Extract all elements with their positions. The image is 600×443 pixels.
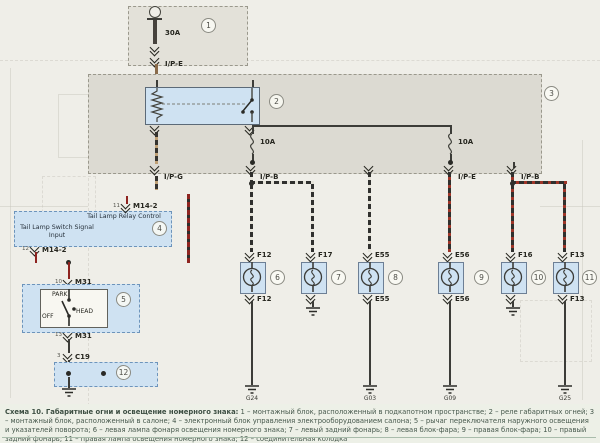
pin-number: 13 [55, 332, 62, 338]
lamp-e56-conn-top: E56 [455, 251, 470, 259]
connector-m14-2-top: M14-2 [133, 202, 157, 210]
bulb-icon [240, 262, 264, 292]
bcm-switch-input-label: Tail Lamp Switch Signal Input [16, 224, 98, 239]
fusible-link-30a [153, 20, 157, 44]
lamp-f13-conn-bottom: F13 [570, 295, 585, 303]
connector-chevron [121, 202, 131, 211]
bcm-relay-control-label: Tail Lamp Relay Control [80, 213, 168, 221]
wire-label-ipb-left: I/P-B [260, 173, 278, 181]
lamp-f13-conn-top: F13 [570, 251, 585, 259]
bulb-icon [358, 262, 382, 292]
relay-internals-icon [145, 87, 258, 123]
lamp-e56-conn-bottom: E56 [455, 295, 470, 303]
pin-number: 3 [57, 353, 61, 359]
caption-title: Схема 10. Габаритные огни и освещение но… [5, 408, 238, 416]
lamp-e55-conn-bottom: E55 [375, 295, 390, 303]
engine-junction-block [128, 6, 248, 66]
lamp-f17-conn-top: F17 [318, 251, 333, 259]
ground-icon [505, 307, 521, 317]
caption-rule [2, 437, 596, 438]
battery-terminal-icon [149, 6, 161, 18]
ground-icon [61, 388, 77, 398]
lamp-f12-conn-top: F12 [257, 251, 272, 259]
callout-1: 1 [201, 18, 216, 33]
callout-3: 3 [544, 86, 559, 101]
pin-number: 12 [22, 246, 29, 252]
ground-g09: G09 [438, 395, 462, 402]
bulb-icon [501, 262, 525, 292]
ground-icon [557, 385, 573, 395]
fuse-10a-right-icon [444, 134, 456, 154]
ground-g25: G25 [553, 395, 577, 402]
wire-label-ipb-right: I/P-B [521, 173, 539, 181]
wire-label-ipe: I/P-E [458, 173, 476, 181]
callout-7: 7 [331, 270, 346, 285]
bulb-icon [301, 262, 325, 292]
ground-g24: G24 [240, 395, 264, 402]
wire-label-ipg: I/P-G [164, 173, 183, 181]
bulb-icon [438, 262, 462, 292]
wiring-diagram-page: 1 30A I/P-E 3 2 I/P-G 10A 10 [0, 0, 600, 443]
lamp-e55-conn-top: E55 [375, 251, 390, 259]
fuse-10a-left-label: 10A [260, 138, 275, 146]
connector-m31-bottom: M31 [75, 332, 92, 340]
callout-9: 9 [474, 270, 489, 285]
connector-chevron [150, 45, 160, 54]
callout-12: 12 [116, 365, 131, 380]
callout-4: 4 [152, 221, 167, 236]
ground-icon [244, 385, 260, 395]
switch-sense-wire [187, 194, 190, 263]
ground-g03: G03 [358, 395, 382, 402]
callout-6: 6 [270, 270, 285, 285]
lamp-f16-conn-top: F16 [518, 251, 533, 259]
callout-10: 10 [531, 270, 546, 285]
switch-lever-icon [40, 289, 106, 326]
callout-2: 2 [269, 94, 284, 109]
pin-number: 11 [113, 203, 120, 209]
bulb-icon [553, 262, 577, 292]
fuse-10a-right-label: 10A [458, 138, 473, 146]
ground-icon [442, 385, 458, 395]
ground-icon [305, 307, 321, 317]
wire-label-ipe-top: I/P-E [165, 60, 183, 68]
lamp-f12-conn-bottom: F12 [257, 295, 272, 303]
coil-output-wire [155, 132, 158, 164]
connector-chevron [150, 164, 160, 173]
callout-8: 8 [388, 270, 403, 285]
callout-11: 11 [582, 270, 597, 285]
fuse-30a-label: 30A [165, 29, 180, 37]
callout-5: 5 [116, 292, 131, 307]
connector-m14-2-bottom: M14-2 [42, 246, 66, 254]
connector-c19: C19 [75, 353, 90, 361]
fuse-10a-left-icon [246, 134, 258, 154]
ground-icon [362, 385, 378, 395]
